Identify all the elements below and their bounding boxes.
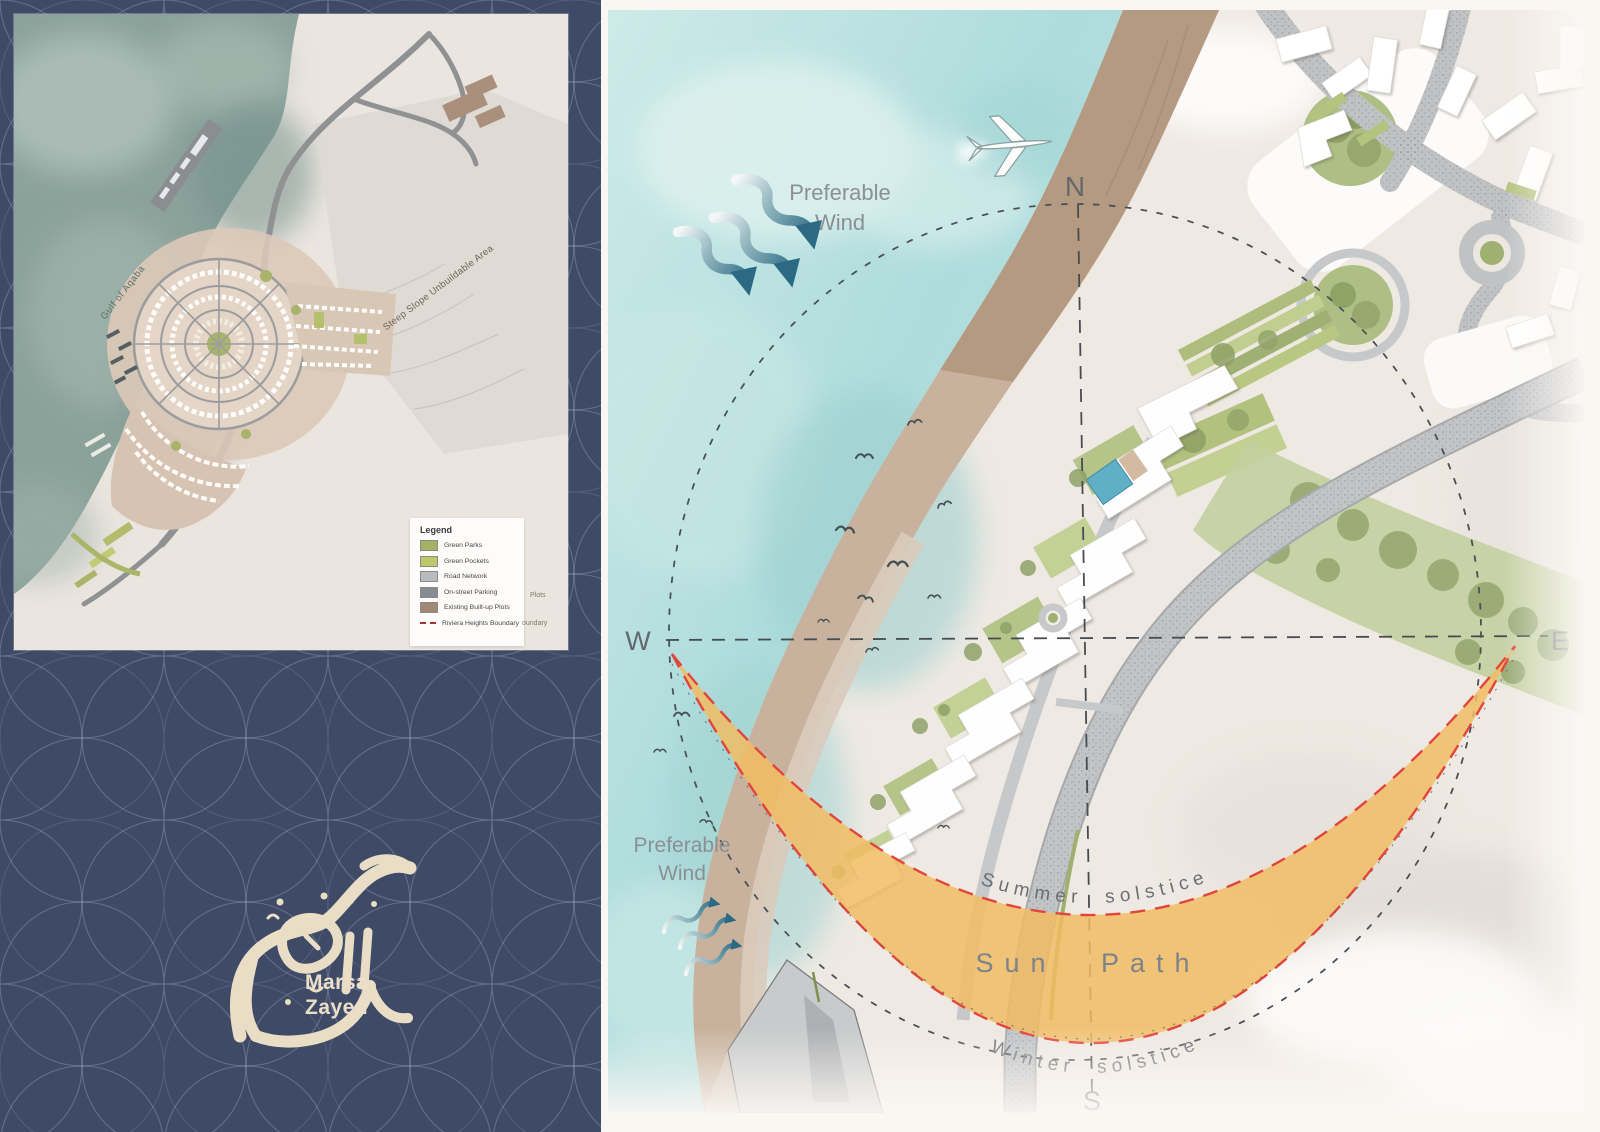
legend-ghost-text: Plots [530, 592, 546, 599]
brand-name: Marsa Zayed [305, 970, 368, 1020]
wind-lower-label-line2: Wind [658, 862, 706, 885]
edge-fade-bottom [608, 1028, 1585, 1113]
legend-item-green-pockets: Green Pockets [420, 557, 524, 566]
green-pockets-swatch [420, 556, 438, 567]
legend-item-label: Green Pockets [444, 558, 489, 565]
wind-upper-label-line2: Wind [815, 210, 865, 235]
wind-upper-label-line1: Preferable [789, 180, 891, 205]
legend-item-existing-plots: Existing Built-up Plots [420, 603, 524, 612]
sun-path-label: Sun Path [975, 948, 1200, 978]
road-network-swatch [420, 571, 438, 582]
legend-item-label: On-street Parking [444, 589, 497, 596]
legend-item-label: Road Network [444, 573, 487, 580]
legend-item-label: Green Parks [444, 542, 482, 549]
legend-item-label: Riviera Heights Boundary [442, 620, 519, 627]
brand-name-line1: Marsa [305, 970, 368, 995]
masterplan-inset-map: Gulf of Aqaba Steep Slope Unbuildable Ar… [14, 14, 568, 650]
green-parks-swatch [420, 540, 438, 551]
legend-ghost-text: oundary [522, 620, 547, 627]
compass-north-label: N [1065, 171, 1085, 202]
legend-item-green-parks: Green Parks [420, 541, 524, 550]
riviera-boundary-swatch [420, 622, 436, 624]
compass-west-label: W [625, 626, 651, 656]
legend-item-riviera-boundary: Riviera Heights Boundary [420, 619, 524, 628]
site-analysis-art: N W E S Summer solstice Sun Path Winter … [608, 10, 1585, 1113]
brand-panel: Gulf of Aqaba Steep Slope Unbuildable Ar… [0, 0, 601, 1132]
inset-steep-slope-area [314, 89, 568, 454]
map-legend: Legend Green Parks Green Pockets Road Ne… [410, 518, 524, 646]
legend-title: Legend [420, 525, 524, 535]
legend-item-label: Existing Built-up Plots [444, 604, 510, 611]
edge-fade-right [1503, 10, 1585, 1113]
poster-canvas: Gulf of Aqaba Steep Slope Unbuildable Ar… [0, 0, 1600, 1132]
site-analysis-map: N W E S Summer solstice Sun Path Winter … [608, 10, 1585, 1113]
existing-plots-swatch [420, 602, 438, 613]
legend-item-road-network: Road Network [420, 572, 524, 581]
legend-item-on-street-parking: On-street Parking [420, 588, 524, 597]
brand-name-line2: Zayed [305, 995, 368, 1020]
on-street-parking-swatch [420, 587, 438, 598]
wind-lower-label-line1: Preferable [634, 834, 731, 857]
